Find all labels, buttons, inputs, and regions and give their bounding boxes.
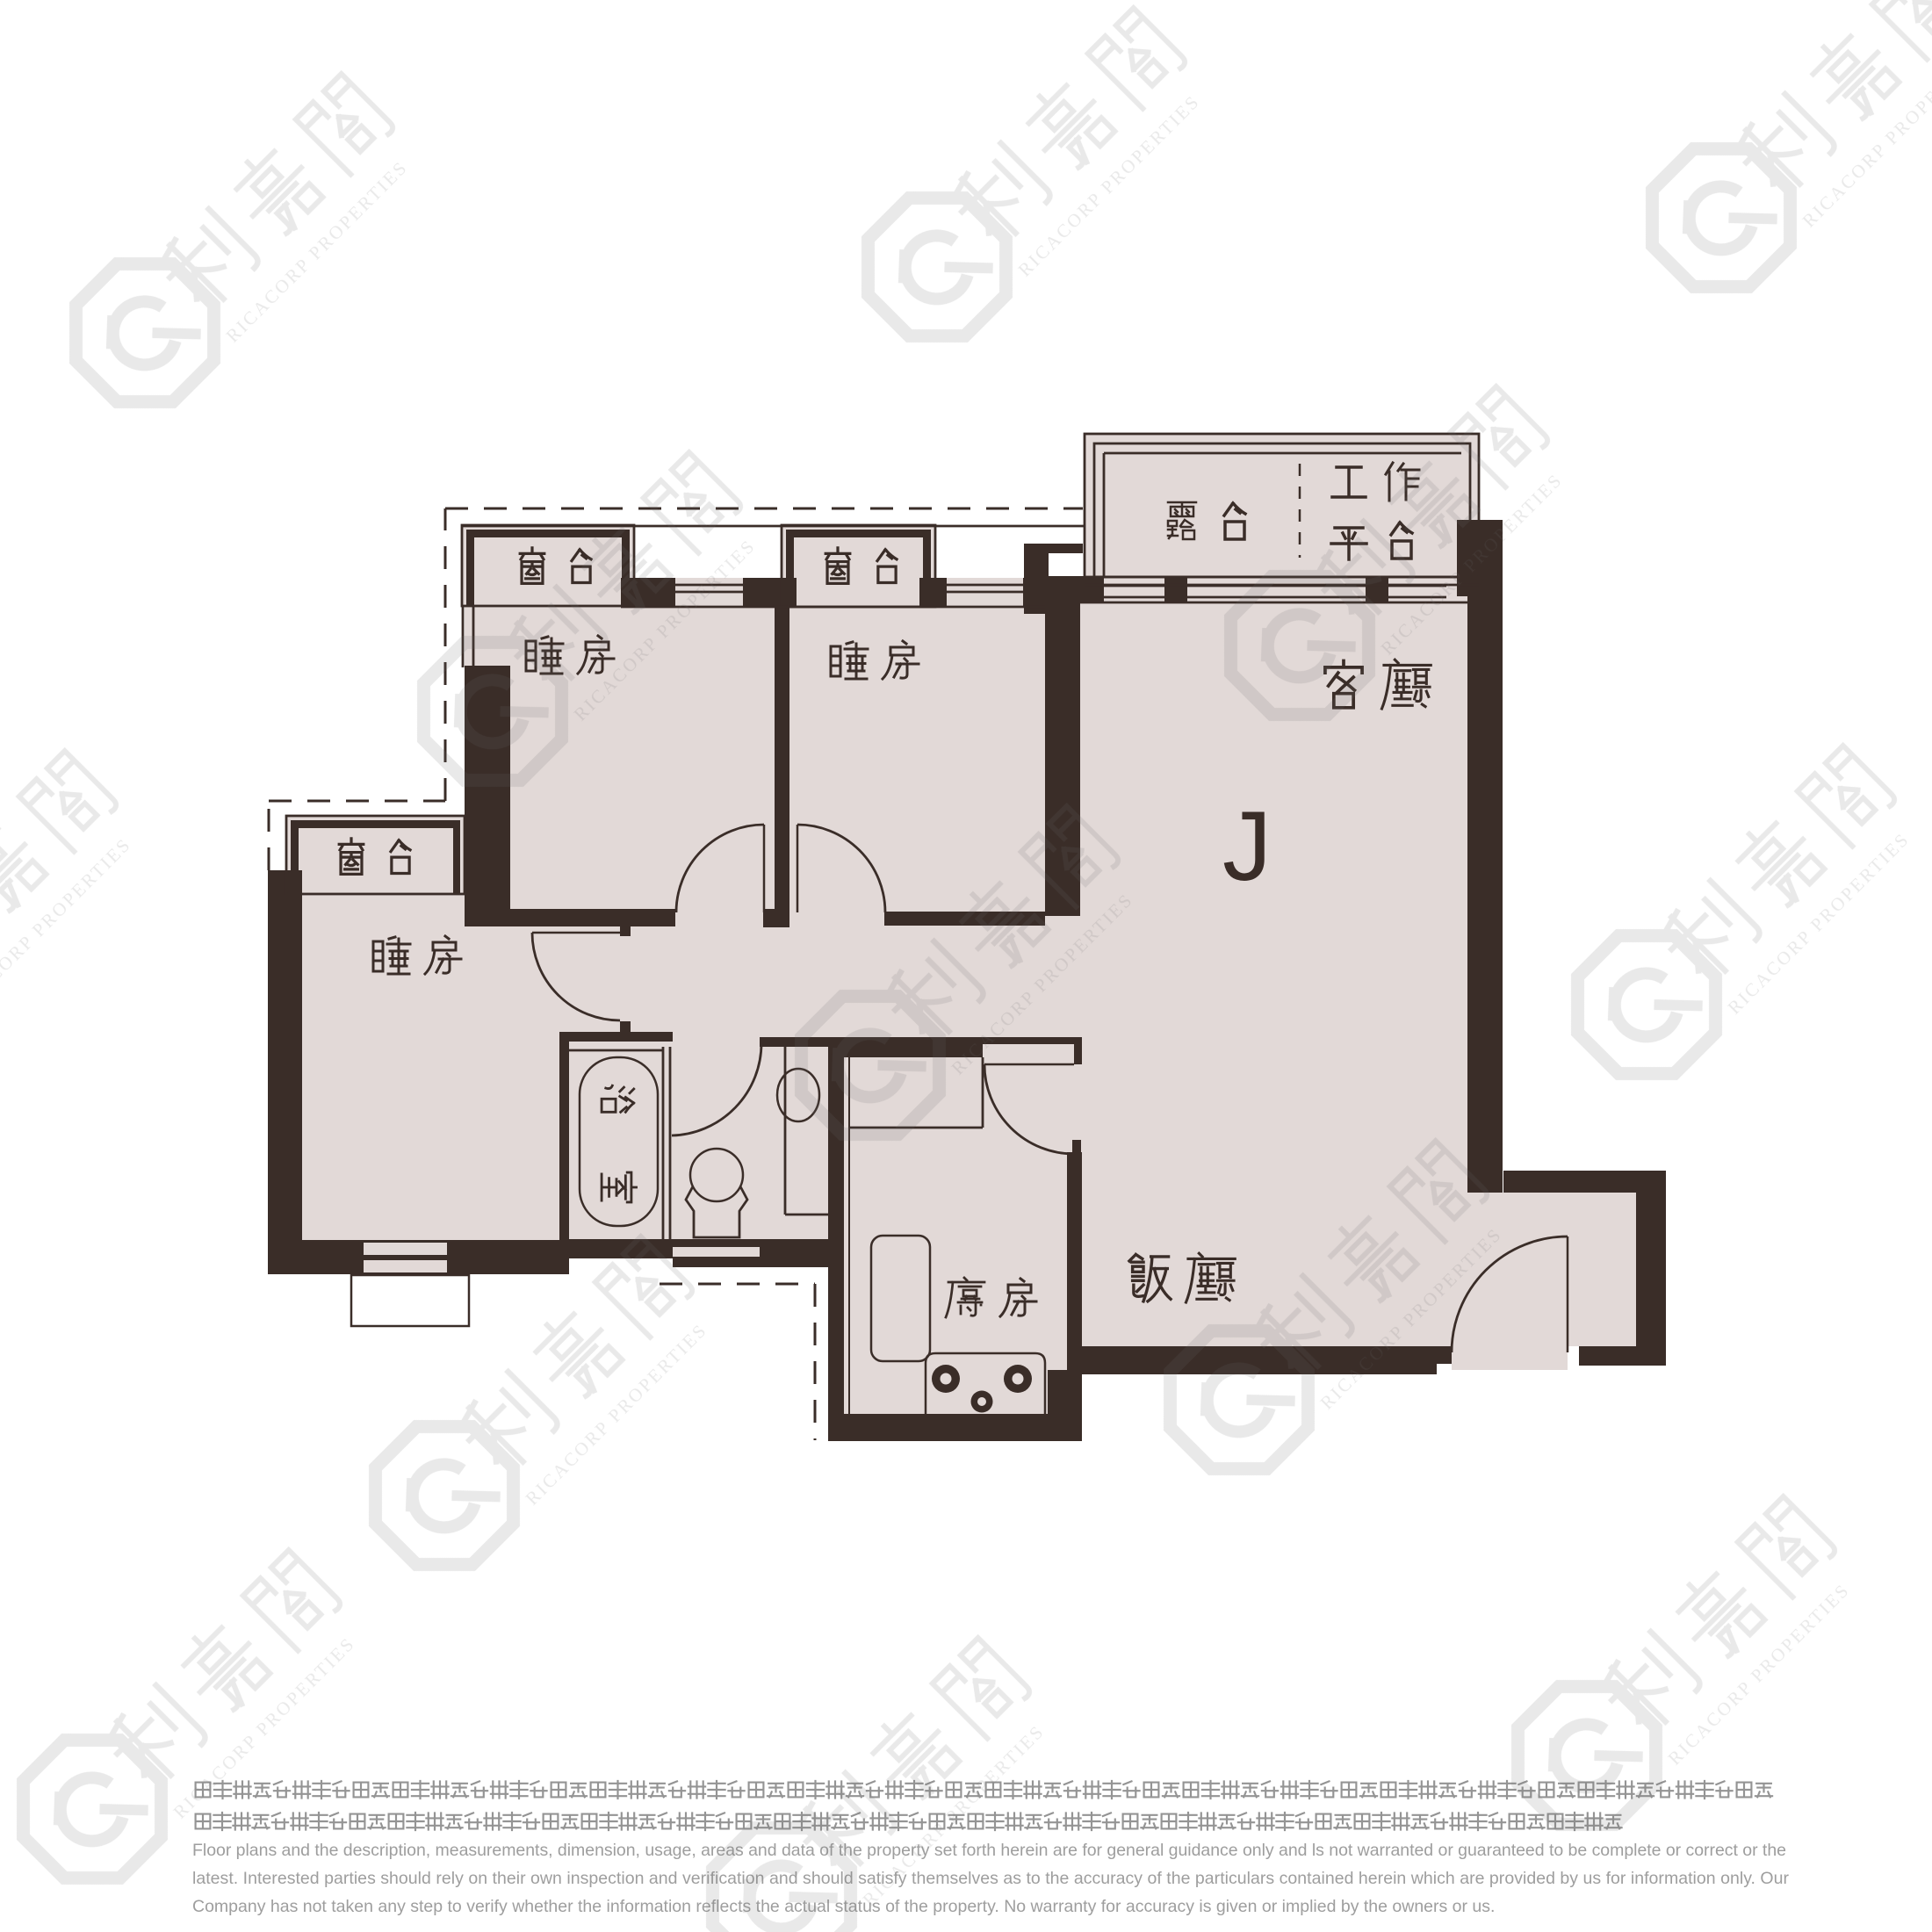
svg-text:Company has not taken any step: Company has not taken any step to verify…	[192, 1897, 1495, 1916]
svg-text:latest. Interested parties sho: latest. Interested parties should rely o…	[192, 1869, 1790, 1888]
svg-text:Floor plans and the descriptio: Floor plans and the description, measure…	[192, 1841, 1786, 1860]
svg-text:J: J	[1222, 791, 1272, 901]
